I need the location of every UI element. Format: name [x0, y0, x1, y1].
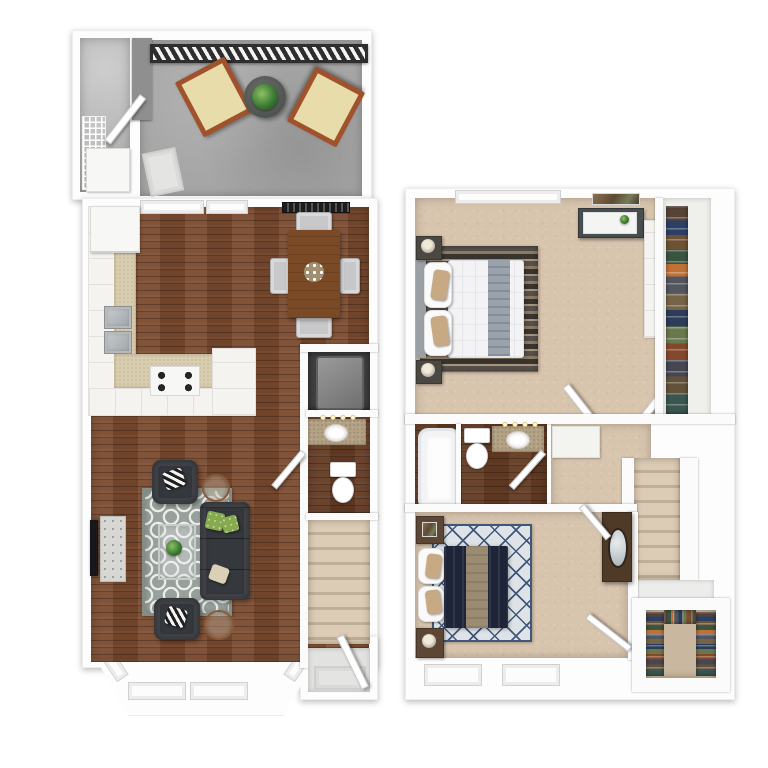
master-wall-art [592, 193, 640, 205]
bathroom-vanity-lights [500, 421, 538, 428]
dresser-plant [620, 215, 629, 224]
master-dresser-front [583, 212, 637, 234]
staircase-second-floor [634, 458, 680, 580]
master-lamp-top [421, 239, 435, 253]
master-closet-wall [655, 198, 663, 422]
stair-half-wall [622, 458, 634, 510]
walk-in-clothes-left [646, 612, 664, 676]
floor-plan-canvas [0, 0, 768, 768]
bathroom-toilet-tank [464, 428, 490, 443]
mid-wall [405, 414, 735, 424]
bedroom2-window-left [424, 664, 482, 686]
master-bed-duvet [448, 260, 524, 358]
bedroom2-accent-pillow-1 [425, 553, 443, 579]
second-floor-plan [0, 0, 768, 768]
bedroom2-window-right [502, 664, 560, 686]
master-closet-clothes [666, 206, 688, 414]
bathroom-toilet-bowl [466, 443, 488, 469]
bedroom2-dresser-mirror [608, 528, 628, 568]
walk-in-clothes-top [664, 610, 696, 624]
hall-linen-cabinet [552, 426, 600, 458]
master-bed-runner [488, 260, 510, 356]
bedroom2-lamp [422, 634, 436, 648]
bedroom2-runner [466, 546, 488, 628]
bedroom2-accent-pillow-2 [425, 589, 443, 615]
walk-in-clothes-right [696, 612, 716, 676]
bathroom-sink [506, 431, 530, 449]
bathtub [418, 428, 460, 510]
master-window [455, 190, 561, 204]
master-lamp-bottom [421, 363, 435, 377]
stair-wall-right [680, 458, 698, 580]
bedroom2-wall-top [405, 504, 637, 512]
bedroom2-photo-frame [422, 522, 437, 537]
tub-divider-wall [456, 424, 461, 508]
